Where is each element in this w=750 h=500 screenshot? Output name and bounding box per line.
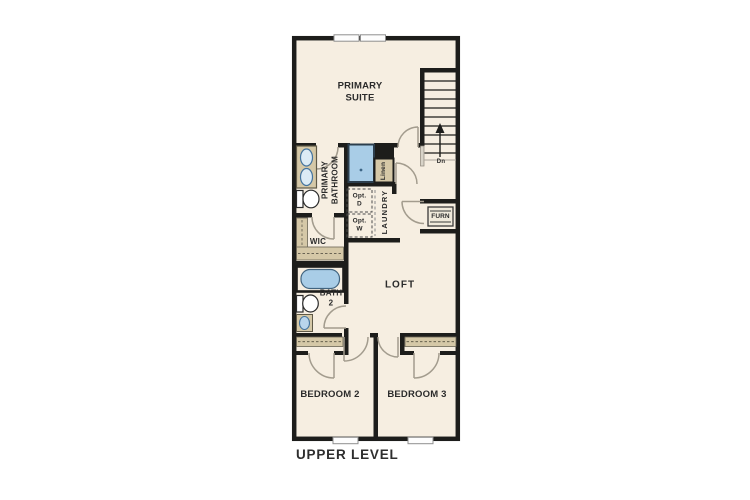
shower-fixture	[349, 145, 375, 183]
floorplan-graphics	[0, 0, 750, 500]
sink-icon	[301, 169, 313, 186]
label-linen: Linen	[380, 161, 388, 179]
label-laundry: LAUNDRY	[380, 190, 390, 235]
label-bath2: BATH 2	[318, 289, 344, 310]
wall-wic-top-left	[294, 213, 312, 218]
wall-closet3-bottom-left	[400, 351, 414, 355]
wall-closet3-bottom-right	[440, 351, 458, 355]
wall-laundry-bottom	[344, 238, 400, 243]
label-opt-dryer: Opt. D	[350, 192, 370, 209]
primary-vanity	[297, 146, 317, 188]
toilet-primary-icon	[297, 190, 320, 208]
label-furnace: FURN	[431, 212, 449, 220]
wall-laundry-right-stub	[392, 184, 397, 194]
label-loft: LOFT	[385, 279, 415, 292]
sink-icon	[300, 317, 310, 330]
label-primary-suite: PRIMARY SUITE	[328, 81, 392, 106]
window-primary-suite-right	[361, 35, 386, 41]
bath2-vanity	[297, 315, 313, 332]
label-wic: WIC	[310, 237, 326, 247]
window-primary-suite-left	[334, 35, 359, 41]
wall-stairwell-left	[420, 68, 425, 146]
wall-wic-bath2-divider	[294, 261, 345, 266]
wall-stairwell-top	[420, 68, 458, 73]
window-bedroom3	[408, 437, 433, 443]
label-opt-washer: Opt. W	[350, 217, 370, 234]
wall-chase	[374, 143, 394, 158]
bedroom3-closet-shelf	[405, 337, 456, 347]
wall-furnace-top	[420, 199, 458, 204]
wall-bedroom-divider	[374, 333, 379, 437]
shower-drain-icon	[360, 169, 363, 172]
label-bedroom3: BEDROOM 3	[387, 389, 446, 401]
wall-closet2-bottom-left	[294, 351, 308, 355]
label-bedroom2: BEDROOM 2	[300, 389, 359, 401]
plan-title: UPPER LEVEL	[296, 447, 399, 462]
label-stairs-dn: Dn	[437, 159, 445, 167]
wall-wic-top-right	[334, 213, 345, 218]
stair-railing	[421, 146, 425, 166]
label-primary-bathroom: PRIMARY BATHROOM	[321, 152, 342, 208]
sink-icon	[301, 149, 313, 166]
window-bedroom2	[333, 437, 358, 443]
toilet-bath2-icon	[297, 295, 319, 312]
wall-furnace-bottom	[420, 229, 458, 234]
bedroom2-closet-shelf	[297, 337, 344, 347]
floorplan-canvas: PRIMARY SUITE PRIMARY BATHROOM Linen LAU…	[0, 0, 750, 500]
